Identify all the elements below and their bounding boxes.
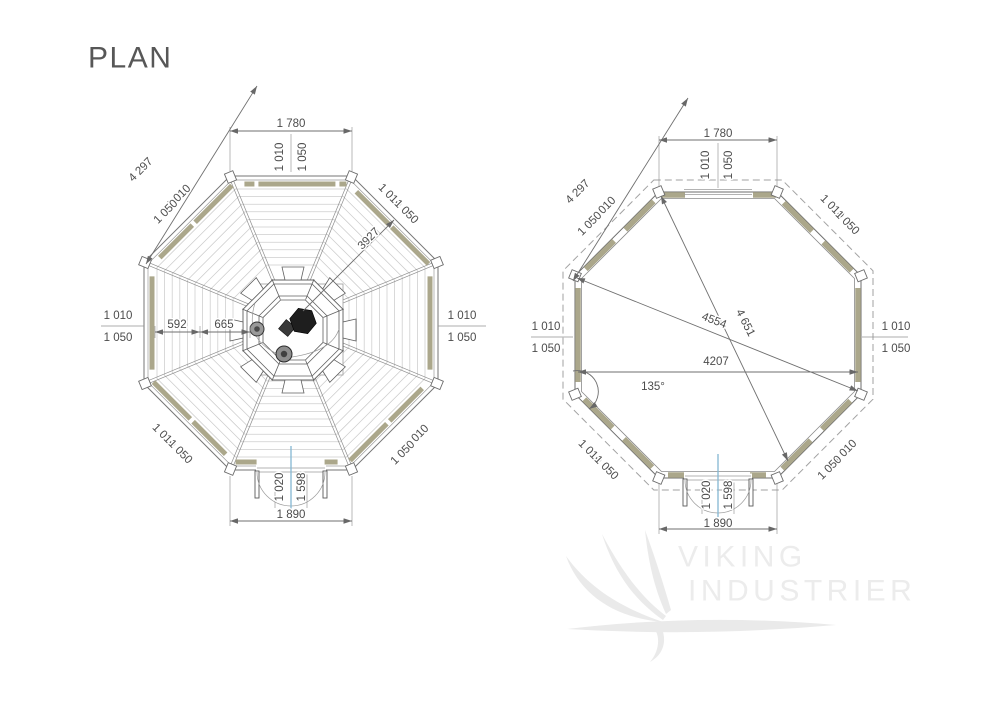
smoke-hood-tab [343, 319, 356, 341]
roof-dim-door-width: 1 020 [274, 473, 286, 502]
floor-dim-e-outer: 1 050 [882, 343, 911, 355]
corner-post [345, 463, 357, 476]
floor-dim-top-width: 1 780 [704, 128, 733, 140]
floor-dim-top-outer: 1 050 [723, 151, 735, 180]
page-title: PLAN [88, 42, 172, 75]
floor-dim-w-outer: 1 050 [532, 343, 561, 355]
floor-dim-inner-width: 4207 [703, 356, 729, 368]
watermark: VIKING INDUSTRIER [566, 530, 916, 662]
floor-dim-overall-diag: 4 297 [564, 178, 593, 207]
watermark-sail-blade [566, 556, 663, 622]
roof-dim-overall-diag: 4 297 [127, 156, 156, 185]
roof-dim-w-outer: 1 050 [104, 332, 133, 344]
floor-dim-e-inner: 1 010 [882, 321, 911, 333]
roof-dim-top-inner: 1 010 [274, 143, 286, 172]
watermark-word2: INDUSTRIER [688, 575, 916, 608]
roof-dim-top-outer: 1 050 [297, 143, 309, 172]
wall-log [350, 424, 387, 461]
wall-log [823, 242, 851, 270]
roof-dim-e-inner: 1 010 [448, 310, 477, 322]
wall-log [822, 401, 850, 429]
dimension-line [573, 98, 688, 281]
roof-dim-slope-diag: 3927 [356, 226, 383, 253]
roof-dim-hub-right: 665 [214, 319, 233, 331]
corner-post [431, 377, 444, 389]
wall-log [625, 201, 653, 229]
floor-dim-door-height: 1 598 [723, 481, 735, 510]
roof-dim-bottom-width: 1 890 [277, 509, 306, 521]
roof-dim-hub-left: 592 [167, 319, 186, 331]
corner-post [224, 171, 236, 184]
wall-log [392, 227, 429, 264]
floor-dim-diag-a: 4554 [700, 311, 729, 332]
floor-plan-dimension-labels: 1 780 1 010 1 050 4 297 1 010 1 050 1 01… [532, 128, 911, 530]
roof-dim-door-height: 1 598 [296, 473, 308, 502]
floor-dim-sw-outer: 1 050 [592, 454, 621, 483]
roof-dim-ne-outer: 1 050 [392, 198, 421, 227]
dimension-line [146, 86, 257, 264]
plan-drawing-canvas: VIKING INDUSTRIER PLAN 1 780 1 010 1 050… [0, 0, 1000, 708]
vent-cap-center [254, 326, 260, 332]
corner-post [139, 377, 152, 389]
smoke-hood-tab [282, 267, 304, 280]
roof-dim-w-inner: 1 010 [104, 310, 133, 322]
floor-dim-corner-angle: 135° [641, 381, 665, 393]
corner-post [345, 171, 357, 184]
wall-log [195, 186, 232, 223]
roof-dim-top-width: 1 780 [277, 118, 306, 130]
wall-log [584, 399, 612, 427]
roof-dim-e-outer: 1 050 [448, 332, 477, 344]
watermark-swoosh [567, 620, 836, 632]
floor-dim-bottom-width: 1 890 [704, 518, 733, 530]
floor-dim-diag-b: 4 651 [733, 307, 757, 338]
floor-dim-door-width: 1 020 [701, 481, 713, 510]
floor-dim-ne-outer: 1 050 [833, 209, 862, 238]
corner-post [431, 256, 444, 268]
wall-log [154, 382, 191, 419]
floor-dim-w-inner: 1 010 [532, 321, 561, 333]
wall-log [624, 439, 652, 467]
plan-sheet: VIKING INDUSTRIER PLAN 1 780 1 010 1 050… [0, 0, 1000, 708]
roof-dim-sw-outer: 1 050 [166, 438, 195, 467]
vent-cap-center [281, 351, 287, 357]
wall-log [784, 203, 812, 231]
dimension-line [577, 278, 858, 391]
roof-plan-drawing [101, 86, 486, 526]
watermark-word1: VIKING [678, 541, 807, 574]
smoke-hood-tab [282, 380, 304, 393]
wall-log [586, 241, 614, 269]
corner-post [224, 463, 236, 476]
floor-dim-top-inner: 1 010 [700, 151, 712, 180]
wall-log [782, 440, 810, 468]
